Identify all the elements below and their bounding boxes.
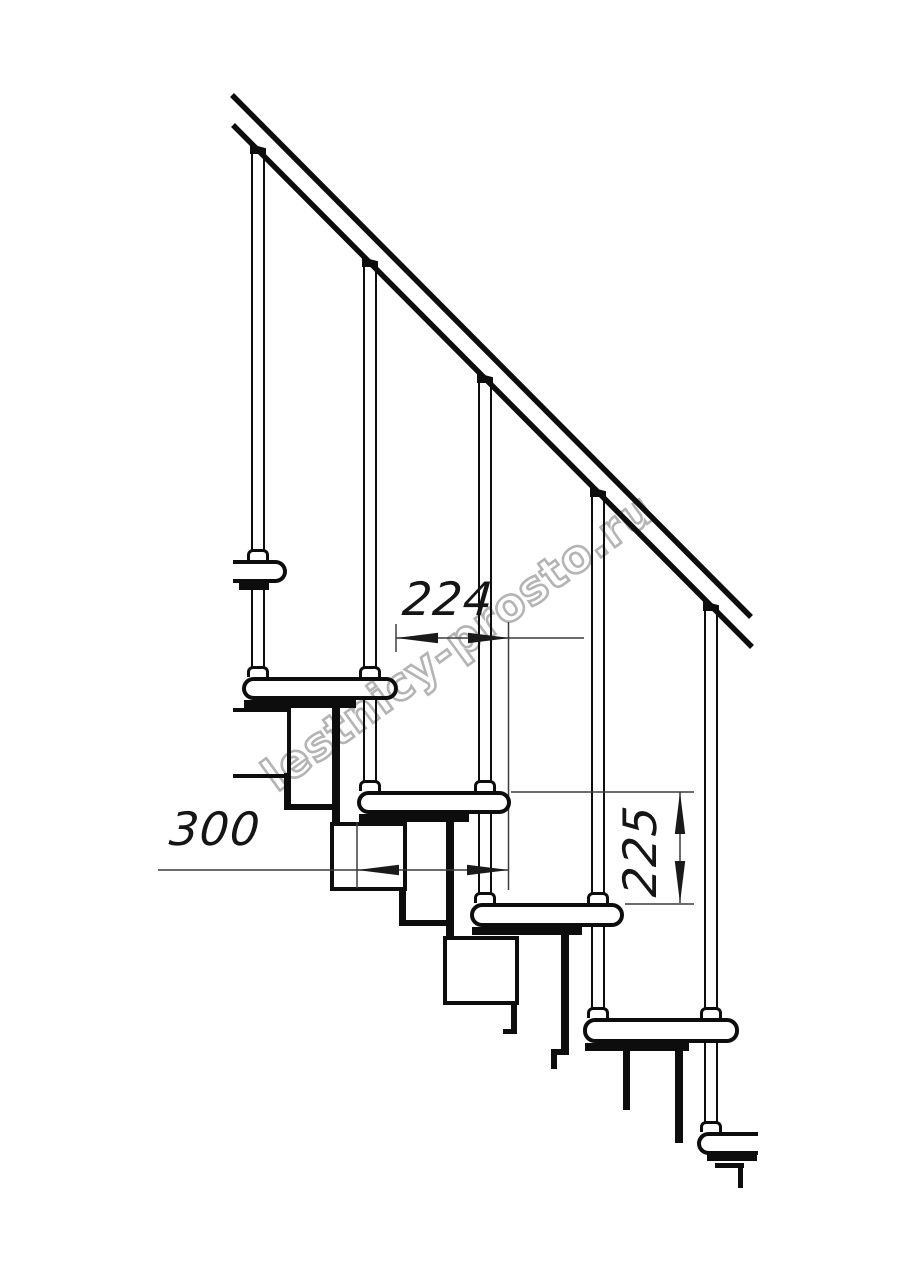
rail-and-dimensions — [0, 0, 914, 1280]
dim-label-riser-height: 225 — [617, 799, 667, 903]
staircase-drawing: lestnicy-prosto.ru 224 300 225 — [0, 0, 914, 1280]
arrow-left-icon — [396, 633, 438, 643]
arrow-right-icon — [468, 633, 510, 643]
handrail-lower-line — [233, 125, 752, 647]
arrow-right-icon — [467, 865, 509, 875]
arrow-left-icon — [357, 865, 399, 875]
dim-label-step-run: 224 — [396, 576, 500, 622]
arrow-up-icon — [675, 792, 685, 834]
dim-label-tread-depth: 300 — [163, 806, 267, 852]
handrail-upper-line — [232, 95, 751, 617]
arrow-down-icon — [675, 861, 685, 903]
